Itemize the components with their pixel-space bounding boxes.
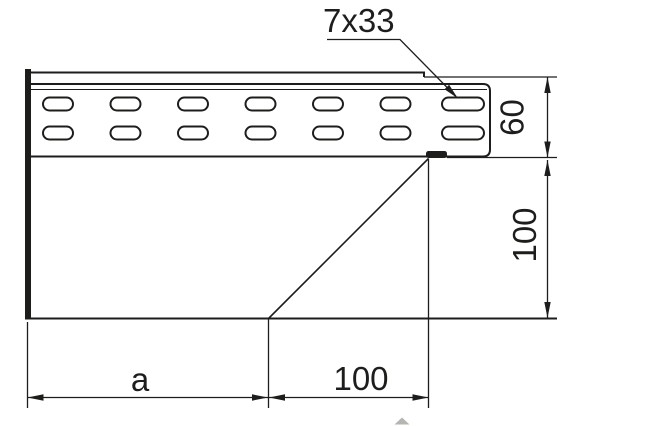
- dim-100-bottom-label: 100: [333, 360, 388, 397]
- slot: [178, 98, 208, 111]
- arrowhead-a-left: [28, 394, 44, 400]
- slot-callout-leader: [327, 40, 456, 97]
- dim-60-label: 60: [494, 99, 531, 136]
- slot-grid: [43, 98, 484, 140]
- dimension-bottom-100: 100: [269, 159, 429, 409]
- slot: [313, 127, 343, 140]
- slot: [442, 127, 484, 140]
- scan-artifact: [395, 418, 410, 425]
- technical-drawing-canvas: 7x33 60 100 a: [0, 0, 665, 426]
- slot: [381, 98, 411, 111]
- arrowhead-100b-right: [413, 394, 429, 400]
- arrowhead-60-bottom: [544, 142, 550, 158]
- arrowhead-100r-top: [544, 160, 550, 176]
- slot: [246, 127, 276, 140]
- slot: [381, 127, 411, 140]
- arrowhead-100r-bottom: [544, 302, 550, 318]
- dimension-body-height: 100: [506, 160, 551, 318]
- slot: [111, 98, 141, 111]
- slot: [442, 98, 484, 111]
- slot: [313, 98, 343, 111]
- slot: [178, 127, 208, 140]
- slot: [43, 127, 73, 140]
- left-edge-bar: [25, 69, 31, 319]
- part-outline: [25, 69, 557, 319]
- arrowhead-100b-left: [269, 394, 285, 400]
- cable-tray-reducer-drawing: 7x33 60 100 a: [0, 0, 665, 426]
- slot-callout-label: 7x33: [323, 2, 395, 39]
- weld-mark: [426, 151, 447, 158]
- slot: [43, 98, 73, 111]
- arrowhead-a-right: [252, 394, 268, 400]
- dimension-bottom-a: a: [28, 319, 269, 409]
- dim-a-label: a: [131, 361, 150, 398]
- rail-outline: [31, 84, 490, 157]
- dim-100-right-label: 100: [506, 207, 543, 262]
- slot: [246, 98, 276, 111]
- arrowhead-60-top: [544, 77, 550, 93]
- diagonal-edge: [269, 159, 429, 319]
- slot: [111, 127, 141, 140]
